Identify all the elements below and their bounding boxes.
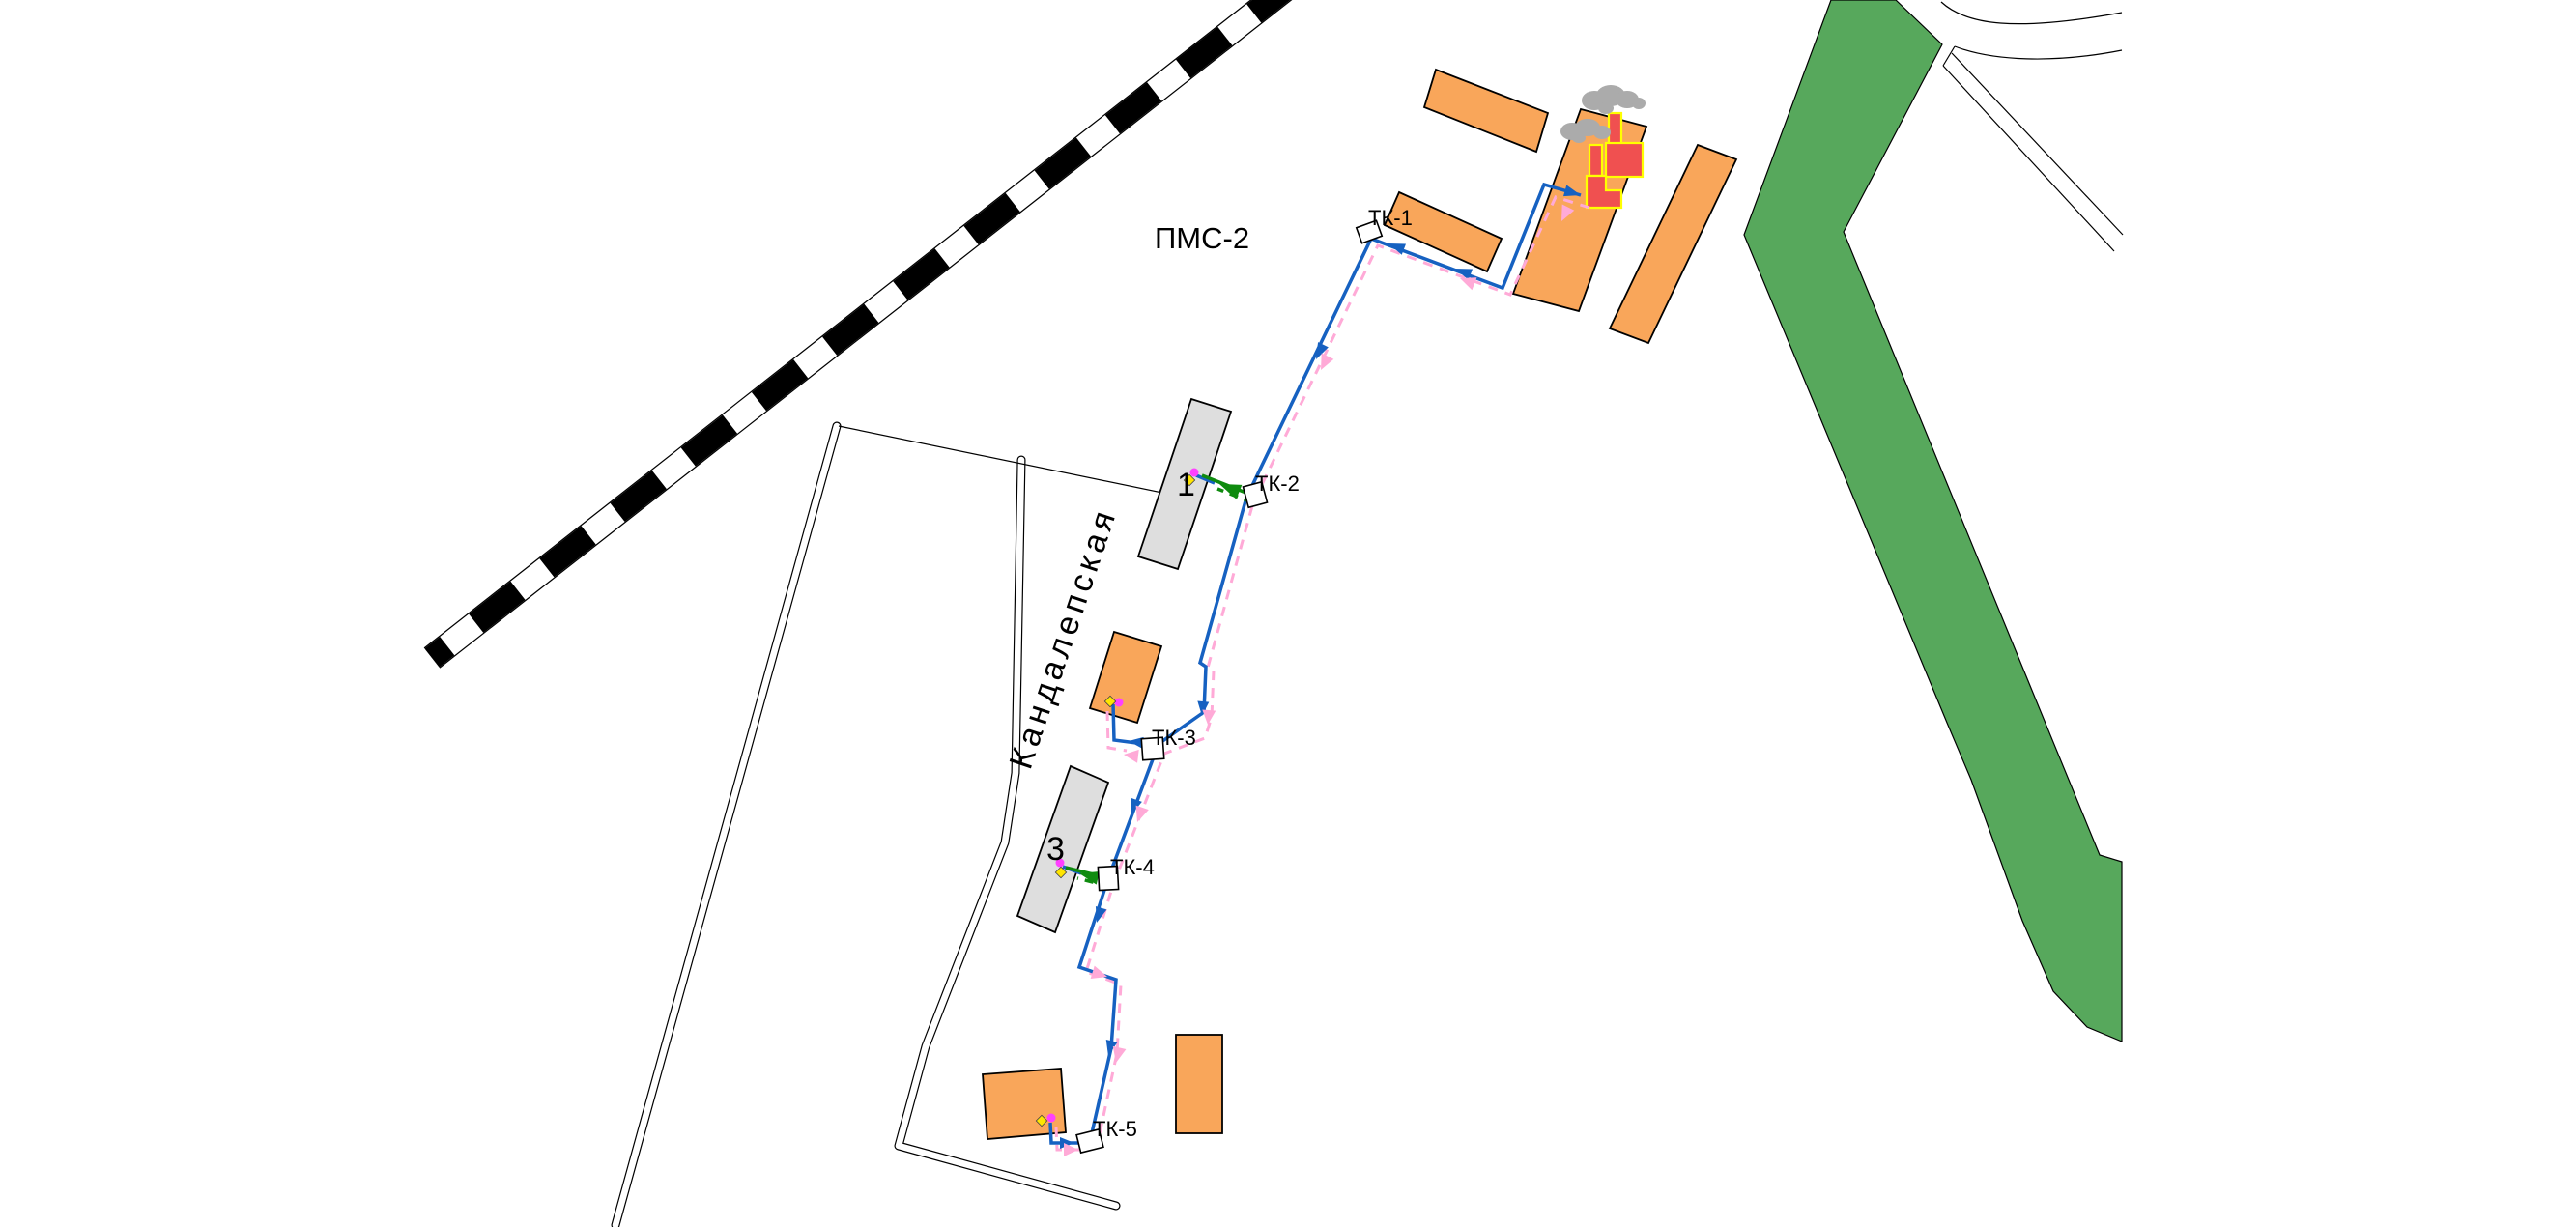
building-orange-7[interactable]: [1176, 1035, 1222, 1133]
building-orange-1[interactable]: [1424, 70, 1548, 152]
gis-map-canvas[interactable]: ПМС-2 ТК-1 ТК-2 ТК-3 ТК-4 ТК-5 1 3 Канда…: [0, 0, 2576, 1227]
node-label-tk1: ТК-1: [1368, 206, 1413, 230]
node-label-tk5: ТК-5: [1093, 1117, 1137, 1141]
boiler-block-a[interactable]: [1606, 143, 1643, 177]
road-diagonal-lower: [1943, 66, 2114, 251]
building-label-3: 3: [1046, 831, 1065, 868]
road-outlines: [1941, 2, 2123, 251]
road-hook: [1943, 46, 1955, 66]
node-label-tk3: ТК-3: [1152, 726, 1196, 750]
region-label: ПМС-2: [1155, 221, 1249, 255]
boiler-chimney[interactable]: [1609, 113, 1621, 145]
building-orange-2[interactable]: [1385, 192, 1502, 271]
flow-arrow-icon: [1201, 709, 1216, 725]
node-label-tk2: ТК-2: [1255, 471, 1300, 496]
road-curve-inner: [1955, 46, 2122, 59]
building-orange-5[interactable]: [1090, 632, 1161, 723]
connection-dot-magenta[interactable]: [1047, 1114, 1056, 1123]
road-diagonal-upper: [1952, 53, 2123, 235]
building-orange-6[interactable]: [983, 1069, 1066, 1139]
flow-arrow-icon: [1064, 1143, 1078, 1156]
building-label-1: 1: [1177, 467, 1195, 503]
fence-strip-long: [615, 426, 837, 1225]
node-label-tk4: ТК-4: [1110, 855, 1155, 879]
smoke-plume-icon: [1582, 85, 1646, 114]
boiler-block-b[interactable]: [1589, 145, 1602, 176]
road-curve-outer: [1941, 2, 2122, 24]
green-area: [1744, 0, 2122, 1042]
map-labels: ПМС-2 ТК-1 ТК-2 ТК-3 ТК-4 ТК-5 1 3 Канда…: [1003, 206, 1413, 1141]
fence-line: [839, 426, 1190, 499]
connection-dot-magenta[interactable]: [1115, 699, 1124, 707]
